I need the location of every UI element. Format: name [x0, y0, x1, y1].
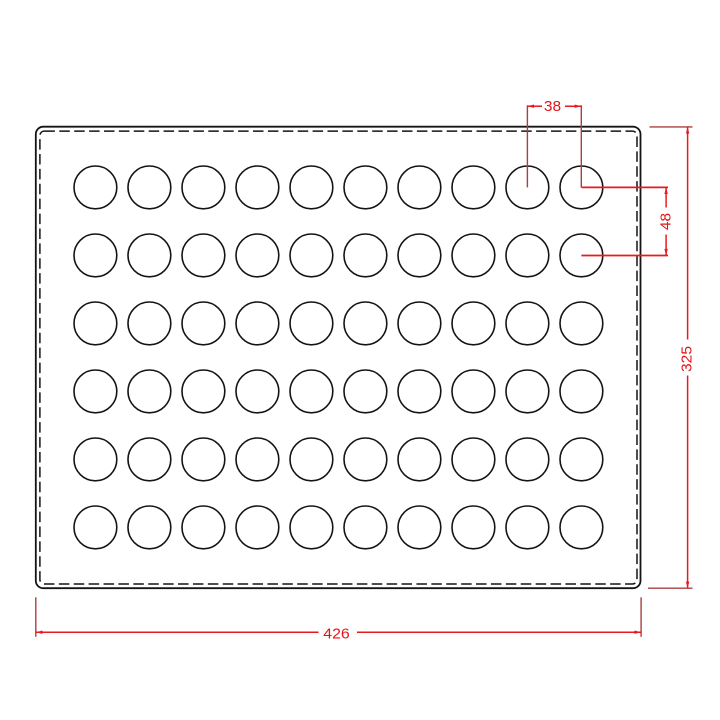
svg-text:38: 38	[544, 99, 561, 115]
svg-text:325: 325	[680, 346, 696, 372]
svg-text:48: 48	[659, 213, 675, 230]
svg-text:426: 426	[323, 626, 350, 642]
